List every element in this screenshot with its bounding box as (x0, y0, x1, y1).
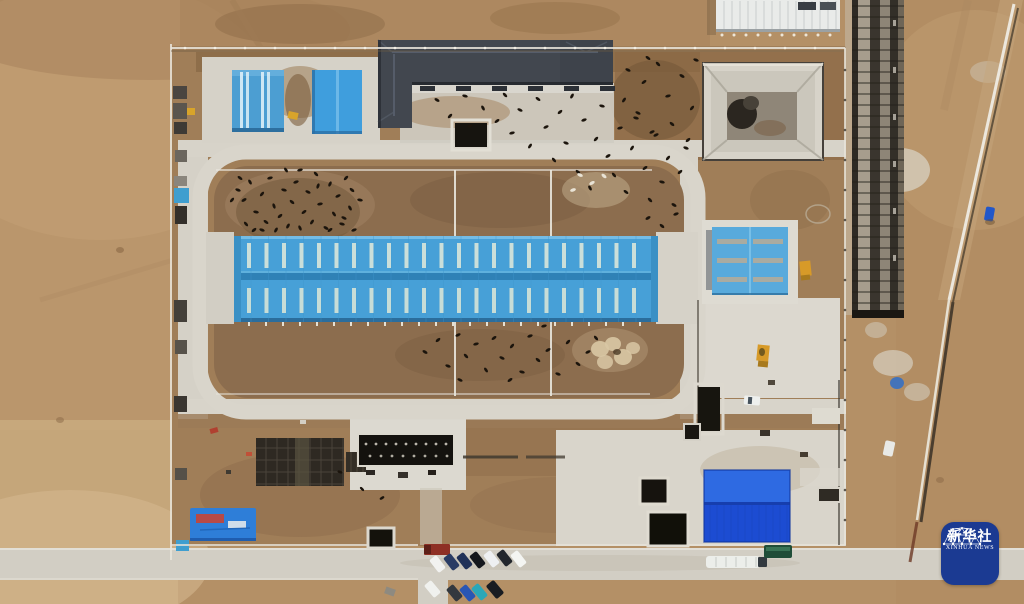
fence-post (244, 47, 247, 50)
blue-shed-B-edge-bottom (312, 131, 362, 134)
pond-rim-highlight (703, 63, 823, 66)
blue-building-ridge (704, 502, 790, 505)
debris (300, 420, 306, 424)
blue-shed-A-rib (246, 72, 249, 128)
steel-frame-cap (852, 310, 904, 318)
slab-B-speck (405, 443, 408, 446)
fence-post (304, 47, 307, 50)
pad-small (812, 408, 840, 424)
fence-post (634, 47, 637, 50)
dark-building-window (600, 86, 615, 91)
barn-skylight-south (265, 288, 269, 313)
barn-skylight-south (615, 288, 619, 313)
slab-B-speck (424, 455, 427, 458)
blue-shed-C-vent (753, 277, 783, 282)
fence-post (844, 99, 847, 102)
barn-skylight-north (405, 243, 409, 268)
red-debris (246, 452, 252, 456)
slab-B-speck (391, 455, 394, 458)
white-shed-post (721, 34, 724, 37)
west-container (175, 206, 187, 224)
west-container (174, 176, 187, 186)
steel-frame-col (898, 0, 904, 315)
steel-frame-glint (893, 67, 896, 73)
barn-skylight-south (317, 288, 321, 313)
fence-post (694, 47, 697, 50)
blue-shed-C-vent (717, 277, 747, 282)
gravel-patch (873, 350, 913, 376)
blue-shed-A-top (232, 70, 284, 76)
white-shed-edge (716, 29, 840, 32)
barn-skylight-north (562, 243, 566, 268)
debris (800, 452, 808, 457)
blue-shed-C-vent (753, 258, 783, 263)
fence-post (754, 47, 757, 50)
fence-post (844, 429, 847, 432)
white-shed-post (733, 34, 736, 37)
slab-B-speck (385, 443, 388, 446)
barn-apron-west (206, 232, 234, 324)
steel-frame-glint (893, 20, 896, 26)
debris (226, 470, 231, 474)
white-shed-post (817, 34, 820, 37)
fence-post (844, 489, 847, 492)
barn-skylight-north (632, 243, 636, 268)
pond-dark-blob (743, 96, 759, 110)
steel-frame-pale (845, 0, 852, 315)
blue-shed-A-roof (232, 70, 284, 132)
hay-ring (605, 337, 621, 351)
fence-post (364, 47, 367, 50)
barn-skylight-north (317, 243, 321, 268)
barn-skylight-south (475, 288, 479, 313)
blue-shed-A-rib (240, 72, 243, 128)
slatted-slab-B (358, 434, 454, 466)
steel-frame-col (880, 0, 890, 315)
path-gate (420, 488, 442, 545)
fence-post (664, 47, 667, 50)
fence-post (514, 47, 517, 50)
pad-debris (398, 472, 408, 478)
ground-top-dark2 (490, 2, 620, 34)
fence-post (844, 249, 847, 252)
fence-post (454, 47, 457, 50)
pit (640, 478, 668, 504)
fence-post (814, 47, 817, 50)
west-container (175, 468, 187, 480)
fence-post (844, 189, 847, 192)
barn-skylight-south (545, 288, 549, 313)
barn-skylight-south (352, 288, 356, 313)
barn-west-shade (234, 236, 241, 322)
barn-skylight-north (422, 243, 426, 268)
barn-skylight-south (597, 288, 601, 313)
barn-skylight-south (335, 288, 339, 313)
barn-skylight-north (597, 243, 601, 268)
pit-tall (698, 387, 720, 431)
barn-ridge (234, 272, 658, 280)
ground-left-mid (0, 210, 172, 430)
hay-ring (626, 342, 640, 354)
white-shed-post (769, 34, 772, 37)
blue-shed-A-rib (261, 72, 264, 128)
blue-shed-A-edge (232, 128, 284, 132)
dirt-speckle (116, 247, 124, 253)
dirt-speckle (936, 477, 944, 483)
west-yellow-object (187, 108, 195, 115)
gravel-patch (865, 322, 887, 338)
yellow-loader-bucket (801, 275, 810, 281)
paddock-dark (410, 172, 590, 228)
white-shed-post (745, 34, 748, 37)
debris (760, 430, 770, 436)
fence-post (844, 369, 847, 372)
pit (648, 512, 688, 546)
blue-tarp-pile (190, 508, 256, 541)
fence-post (844, 339, 847, 342)
tarp-edge (190, 538, 256, 541)
slab-B-speck (380, 455, 383, 458)
white-shed-post (829, 34, 832, 37)
car-shadow (985, 219, 995, 225)
white-shed-post (793, 34, 796, 37)
barn-apron-east (656, 232, 698, 324)
barn-skylight-north (615, 243, 619, 268)
fence-post (844, 519, 847, 522)
white-shed-unit (820, 2, 836, 10)
dark-building-window (456, 86, 471, 91)
fence-post (484, 47, 487, 50)
red-truck-cab (424, 545, 431, 554)
barn-skylight-south (422, 288, 426, 313)
fence-post (724, 47, 727, 50)
slab-B-speck (435, 455, 438, 458)
barn-skylight-north (527, 243, 531, 268)
fence-post (784, 47, 787, 50)
west-container (174, 122, 187, 134)
barn-skylight-north (510, 243, 514, 268)
blue-shed-A-rib (267, 72, 270, 128)
west-container (174, 300, 187, 322)
tanker-cab (758, 557, 767, 567)
aerial-canvas (0, 0, 1024, 604)
barn-skylight-south (562, 288, 566, 313)
white-shed-unit (798, 2, 816, 10)
blue-shed-C-edge (712, 293, 788, 295)
xinhua-watermark: 新华社 XINHUA NEWS (941, 522, 999, 585)
barn-bottom-edge (234, 318, 658, 322)
yellow-loader-body (799, 260, 812, 276)
fence-post (844, 219, 847, 222)
slab-B-speck (413, 455, 416, 458)
pad-debris (428, 470, 436, 475)
dark-building-window (528, 86, 543, 91)
steel-frame-col (870, 0, 880, 315)
barn-skylight-north (475, 243, 479, 268)
white-shed-shadow (707, 0, 716, 35)
fence-post (394, 47, 397, 50)
fence-post (844, 309, 847, 312)
slab-B-speck (365, 443, 368, 446)
barn-skylight-north (440, 243, 444, 268)
pit (818, 488, 840, 502)
white-shed-post (805, 34, 808, 37)
hay-ring (597, 355, 613, 369)
west-container (175, 340, 187, 354)
west-container (174, 396, 187, 412)
barn-skylight-north (492, 243, 496, 268)
green-bus (764, 545, 792, 558)
steel-frame-glint (893, 255, 896, 261)
barn-skylight-south (282, 288, 286, 313)
blue-shed-B-edge-left (312, 70, 315, 134)
barn-skylight-south (247, 288, 251, 313)
pad-small (800, 468, 842, 486)
slab-B-speck (415, 443, 418, 446)
barn-skylight-south (632, 288, 636, 313)
barn-skylight-south (370, 288, 374, 313)
west-container (173, 103, 187, 119)
barn-top-edge (234, 236, 658, 239)
fence-post (844, 69, 847, 72)
debris (768, 380, 775, 385)
fence-post (574, 47, 577, 50)
pond-stain (754, 120, 786, 136)
fence-post (214, 47, 217, 50)
barn-skylight-north (282, 243, 286, 268)
steel-frame-col (852, 0, 858, 315)
barn-skylight-south (510, 288, 514, 313)
west-container (175, 150, 187, 162)
rebar-grid-A-light (295, 438, 309, 486)
barn-skylight-north (387, 243, 391, 268)
slab-B-speck (435, 443, 438, 446)
pad-bottom-right (556, 430, 846, 546)
barn-skylight-south (300, 288, 304, 313)
dark-building-window (492, 86, 507, 91)
slab-B-speck (375, 443, 378, 446)
slab-B-speck (369, 455, 372, 458)
dirt-speckle (56, 417, 64, 423)
pit-small (684, 424, 700, 440)
slab-B-speck (446, 455, 449, 458)
fence-post (274, 47, 277, 50)
fence-post (334, 47, 337, 50)
barn-skylight-north (545, 243, 549, 268)
barn-skylight-north (580, 243, 584, 268)
white-shed-post (757, 34, 760, 37)
dark-building-window (420, 86, 435, 91)
fence-post (604, 47, 607, 50)
west-container (173, 86, 187, 99)
barn-skylight-south (580, 288, 584, 313)
blue-shed-C-vent (753, 239, 783, 244)
dark-building-window (564, 86, 579, 91)
gravel-patch (904, 383, 930, 401)
barn-skylight-south (527, 288, 531, 313)
barn-skylight-south (457, 288, 461, 313)
steel-frame-glint (893, 114, 896, 120)
blue-shed-C-vent (717, 258, 747, 263)
barn-skylight-north (300, 243, 304, 268)
blue-shed-B-ridge (336, 70, 339, 134)
steel-frame-glint (893, 208, 896, 214)
barn-skylight-north (247, 243, 251, 268)
slab-B-speck (425, 443, 428, 446)
barn-skylight-south (387, 288, 391, 313)
paddock-dark (395, 329, 565, 381)
barn-skylight-south (492, 288, 496, 313)
dark-building-eave (412, 82, 613, 85)
dark-building-edge-left (378, 40, 381, 128)
dark-building-wall (412, 85, 613, 93)
tarp-red-patch (196, 514, 224, 523)
blue-shed-C-vent (717, 239, 747, 244)
steel-frame-col (890, 0, 898, 315)
fence-post (844, 399, 847, 402)
aerial-photo-stage: 新华社 XINHUA NEWS (0, 0, 1024, 604)
blue-object (890, 377, 904, 389)
hay-dark (613, 349, 621, 355)
blue-building-roof-top (704, 470, 790, 504)
loader-dark-part (759, 348, 765, 356)
barn-skylight-north (265, 243, 269, 268)
fence-post (844, 279, 847, 282)
fence-post (424, 47, 427, 50)
green-bus-roof (766, 547, 790, 551)
fence-post (844, 459, 847, 462)
slab-B-speck (445, 443, 448, 446)
pad-debris (366, 470, 375, 475)
steel-frame-glint (893, 161, 896, 167)
barn-skylight-south (405, 288, 409, 313)
tarp-white-patch (228, 521, 246, 528)
fence-post (184, 47, 187, 50)
barn-skylight-north (335, 243, 339, 268)
fence-post (544, 47, 547, 50)
white-shed-post (781, 34, 784, 37)
steel-frame-col (858, 0, 870, 315)
west-water-tank-blue (174, 188, 189, 203)
dark-building-right-block (560, 40, 613, 84)
slab-B-speck (395, 443, 398, 446)
white-tanker (706, 556, 760, 568)
pit (368, 528, 394, 548)
fence-post (844, 129, 847, 132)
slab-B-speck (402, 455, 405, 458)
network-dome-icon (941, 524, 983, 548)
barn-ridge-highlight (234, 271, 658, 273)
barn-skylight-north (370, 243, 374, 268)
barn-east-shade (651, 236, 658, 322)
barn-skylight-south (440, 288, 444, 313)
barn-skylight-north (457, 243, 461, 268)
yellow-loader-bucket (758, 360, 769, 367)
barn-skylight-north (352, 243, 356, 268)
white-pickup-glass (748, 397, 752, 404)
fence-post (844, 159, 847, 162)
